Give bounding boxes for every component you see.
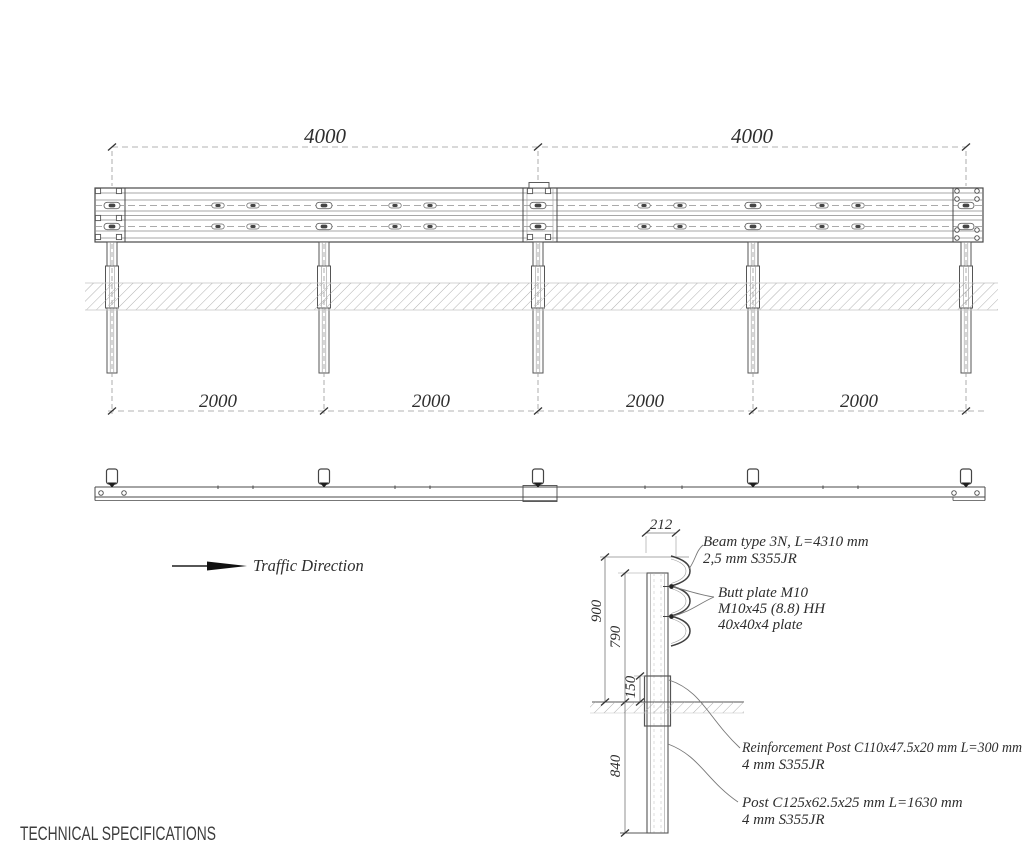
dimension-900: 900 bbox=[589, 599, 605, 622]
butt-plate-note-line1: Butt plate M10 bbox=[718, 585, 808, 601]
reinforcement-note-line1: Reinforcement Post C110x47.5x20 mm L=300… bbox=[741, 740, 1022, 756]
dimension-212: 212 bbox=[650, 517, 673, 533]
plan-posts bbox=[107, 469, 972, 488]
plan-splice-plate bbox=[523, 486, 557, 502]
plan-view bbox=[95, 469, 985, 502]
guardrail-beam bbox=[95, 183, 983, 243]
dimension-790: 790 bbox=[608, 625, 624, 648]
technical-drawing: 4000 4000 bbox=[0, 0, 1024, 858]
page-title: TECHNICAL SPECIFICATIONS bbox=[20, 824, 216, 845]
traffic-arrow-head bbox=[207, 562, 247, 571]
dimension-spacing-1: 2000 bbox=[199, 391, 238, 412]
dimension-spacing-4: 2000 bbox=[840, 391, 879, 412]
beam-note-line2: 2,5 mm S355JR bbox=[703, 551, 797, 567]
traffic-direction-label: Traffic Direction bbox=[253, 556, 364, 575]
guardrail-posts bbox=[106, 242, 973, 414]
dimension-150: 150 bbox=[623, 675, 639, 698]
plan-bolts bbox=[99, 491, 980, 496]
butt-plate-note-line3: 40x40x4 plate bbox=[718, 617, 803, 633]
butt-plate-note-line2: M10x45 (8.8) HH bbox=[717, 601, 826, 617]
dimension-span-1: 4000 bbox=[304, 124, 347, 148]
ground-hatch-elevation bbox=[85, 283, 998, 310]
beam-profile-lines bbox=[95, 193, 983, 238]
post-note-line2: 4 mm S355JR bbox=[742, 812, 825, 828]
elevation-view: 4000 4000 bbox=[85, 124, 998, 415]
dim-840: 840 bbox=[608, 702, 629, 837]
dimension-spacing-3: 2000 bbox=[626, 391, 665, 412]
top-dimension-chain: 4000 4000 bbox=[108, 124, 970, 186]
dimension-span-2: 4000 bbox=[731, 124, 774, 148]
dimension-spacing-2: 2000 bbox=[412, 391, 451, 412]
ground-hatch-detail bbox=[590, 702, 744, 713]
post-note-line1: Post C125x62.5x25 mm L=1630 mm bbox=[741, 795, 963, 811]
dimension-840: 840 bbox=[608, 754, 624, 777]
dim-212: 212 bbox=[642, 517, 680, 557]
reinforcement-note-line2: 4 mm S355JR bbox=[742, 757, 825, 773]
drawing-sheet: 4000 4000 bbox=[0, 0, 1024, 858]
beam-note-line1: Beam type 3N, L=4310 mm bbox=[703, 534, 869, 550]
post-detail-view: 212 900 790 150 840 bbox=[589, 517, 1022, 837]
post-spacing-dimension-chain: 2000 2000 2000 2000 bbox=[108, 391, 985, 415]
traffic-direction: Traffic Direction bbox=[172, 556, 364, 575]
dim-900: 900 bbox=[589, 554, 609, 706]
